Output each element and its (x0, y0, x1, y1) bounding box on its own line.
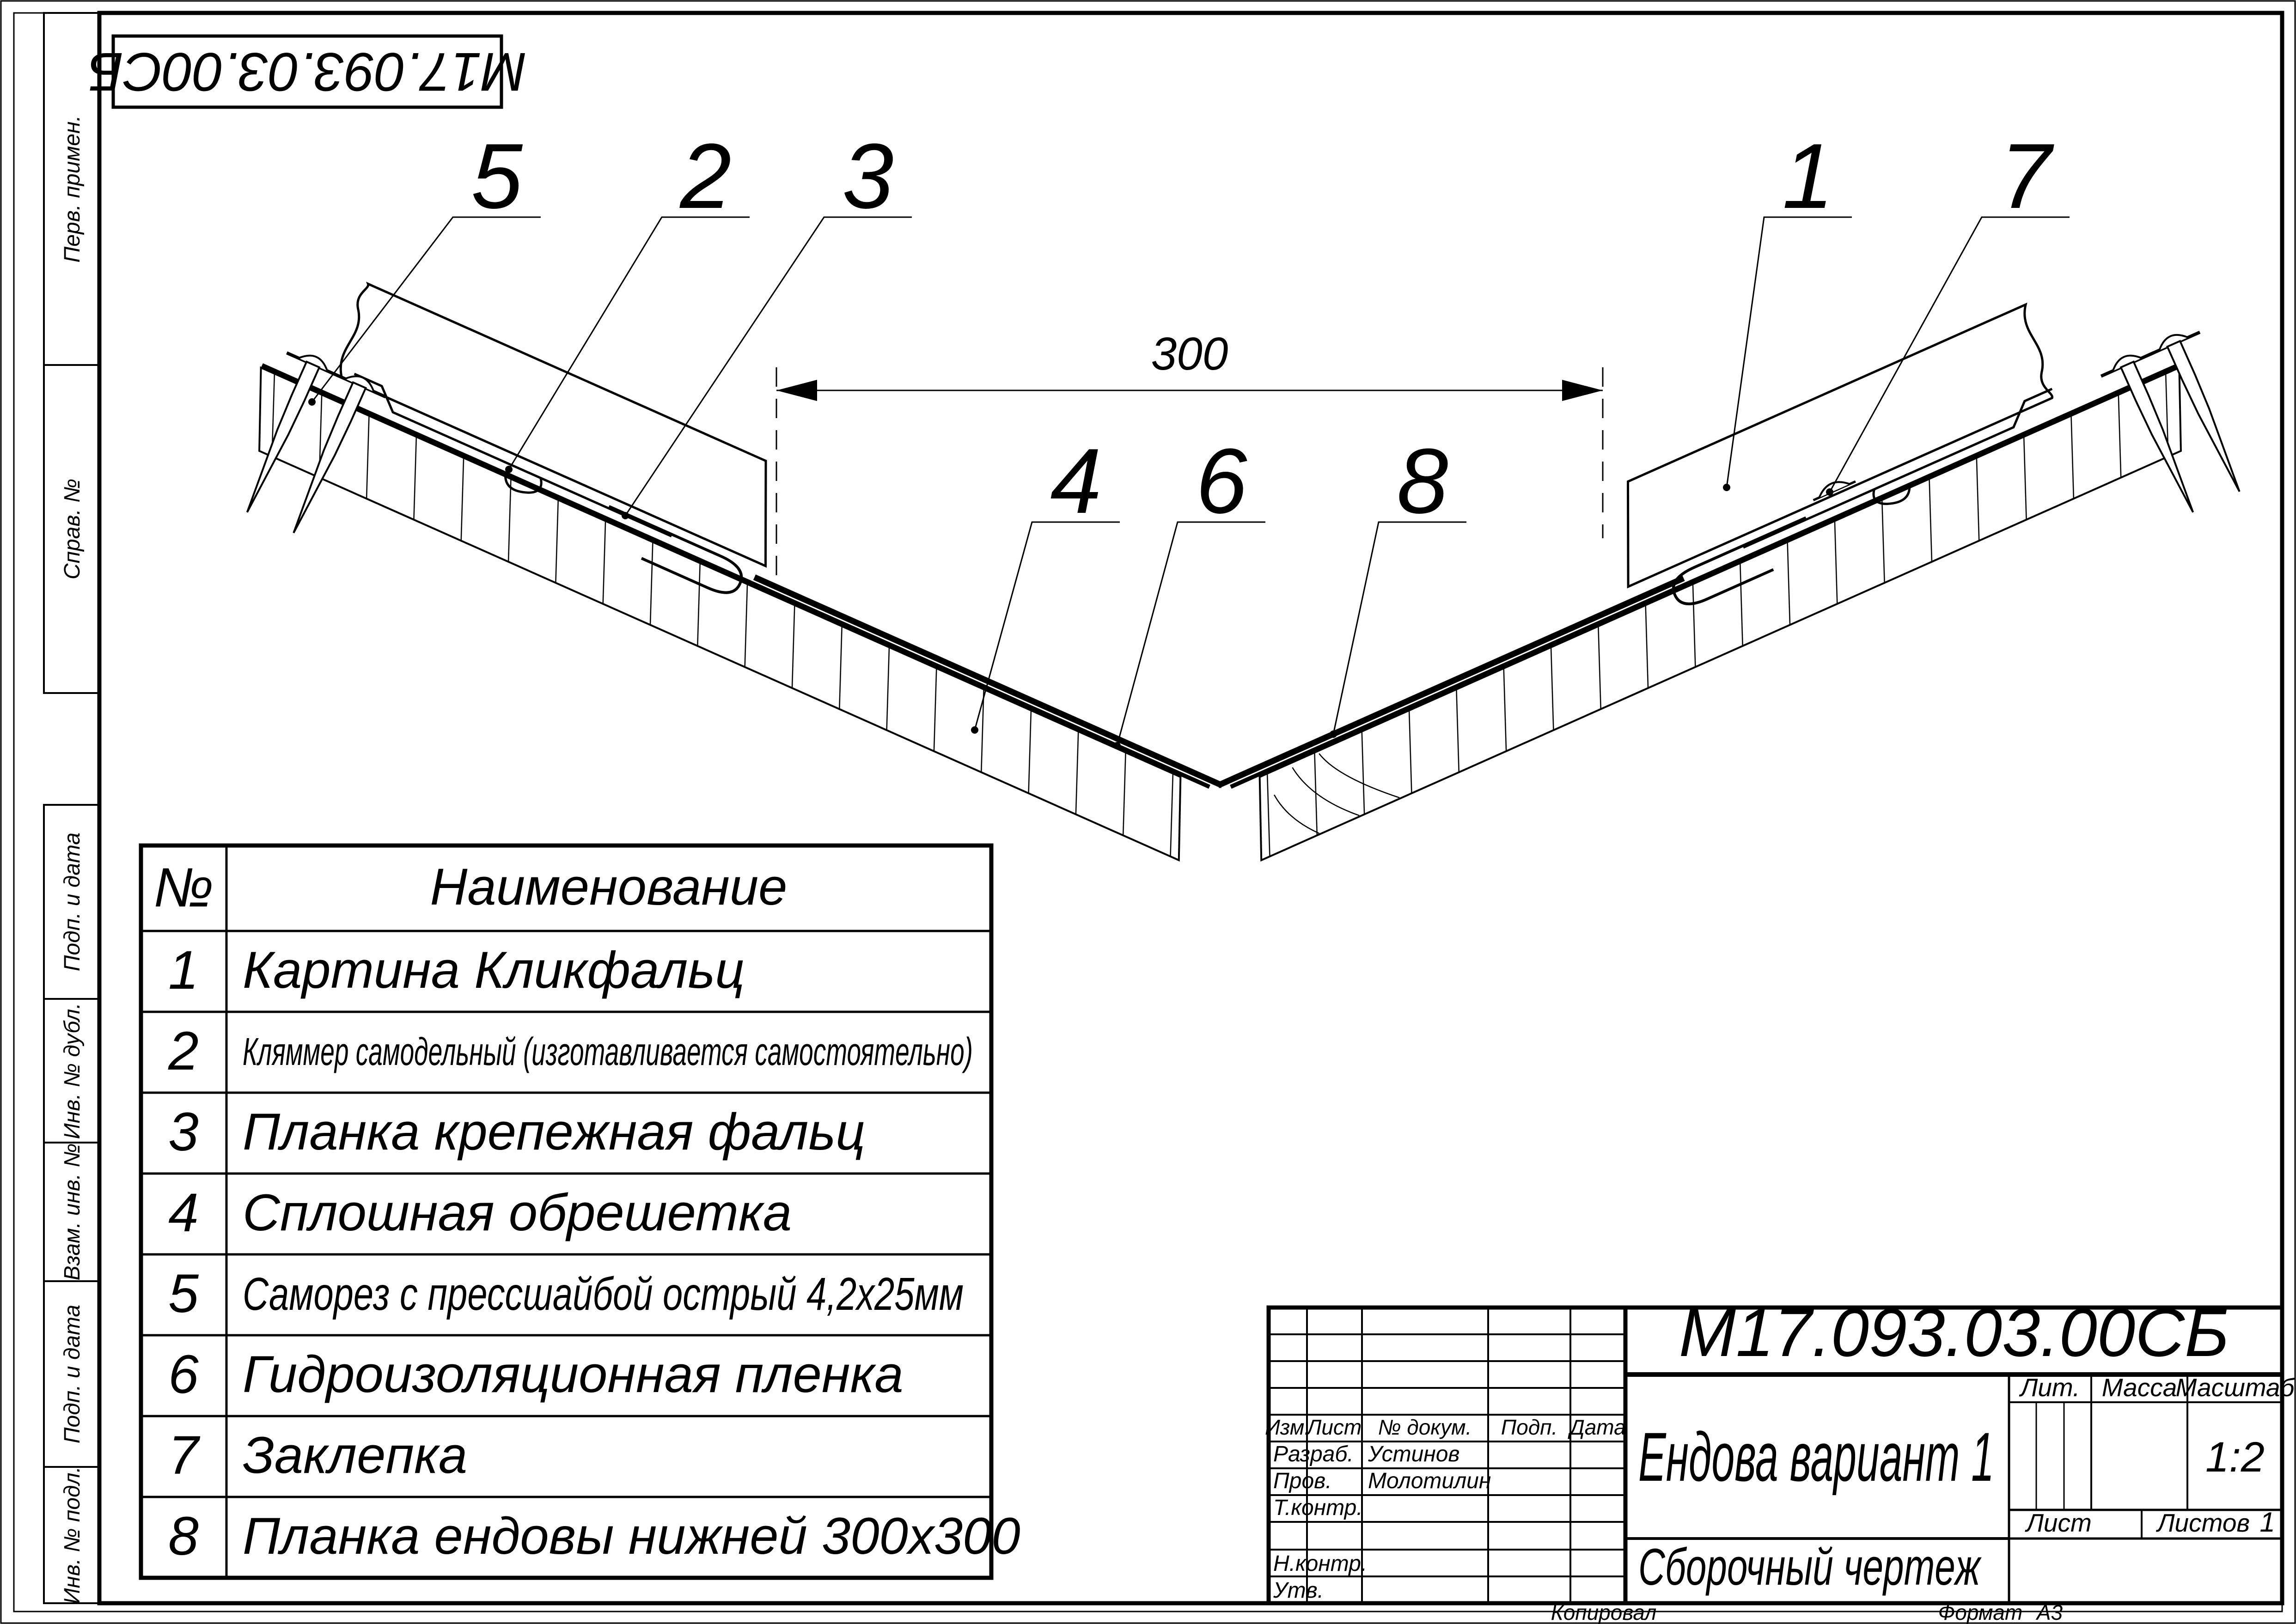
part-num: 8 (168, 1506, 199, 1567)
top-stamp: М17.093.03.00СБ (88, 36, 526, 107)
leader-4-dot (971, 726, 978, 734)
leader-1-dot (1723, 484, 1730, 491)
person-prov: Молотилин (1368, 1469, 1491, 1493)
footer-copied: Копировал (1551, 1600, 1657, 1624)
part-name: Гидроизоляционная пленка (243, 1345, 904, 1403)
title-doc-code: М17.093.03.00СБ (1679, 1295, 2229, 1371)
person-razrab: Устинов (1368, 1442, 1459, 1466)
parts-row-3: 3 Планка крепежная фальц (168, 1101, 865, 1162)
margin-label-perv-primen: Перв. примен. (60, 115, 85, 262)
callout-3: 3 (842, 125, 893, 228)
col-list: Лист (1306, 1415, 1362, 1439)
col-podp: Подп. (1501, 1415, 1557, 1439)
callout-5: 5 (471, 125, 523, 228)
leader-8-dot (1330, 730, 1337, 738)
title-name: Ендова вариант 1 (1638, 1418, 1994, 1496)
part-num: 7 (168, 1425, 201, 1486)
part-num: 6 (168, 1344, 199, 1405)
margin-label-sprav-no: Справ. № (60, 479, 85, 579)
role-tkontr: Т.контр. (1273, 1496, 1363, 1520)
part-name: Заклепка (243, 1426, 467, 1484)
top-stamp-code: М17.093.03.00СБ (88, 41, 526, 102)
listov-value: 1 (2259, 1507, 2275, 1538)
col-izm: Изм. (1265, 1415, 1310, 1439)
col-data: Дата (1567, 1415, 1625, 1439)
part-name: Планка ендовы нижней 300х300 (243, 1507, 1020, 1565)
footer-format-label: Формат (1938, 1600, 2023, 1624)
parts-row-5: 5 Саморез с прессшайбой острый 4,2х25мм (168, 1263, 964, 1324)
role-nkontr: Н.контр. (1273, 1551, 1367, 1576)
parts-row-4: 4 Сплошная обрешетка (168, 1182, 792, 1243)
callout-8: 8 (1397, 430, 1448, 533)
part-name: Сплошная обрешетка (243, 1184, 792, 1241)
parts-row-2: 2 Кляммер самодельный (изготавливается с… (168, 1021, 973, 1082)
part-name: Планка крепежная фальц (243, 1103, 865, 1161)
masshtab-label: Масштаб (2176, 1373, 2296, 1402)
list-label: Лист (2025, 1508, 2092, 1537)
callout-6: 6 (1196, 430, 1247, 533)
leader-2-dot (505, 466, 513, 473)
part-num: 4 (168, 1182, 199, 1243)
leader-6-dot (1113, 742, 1121, 749)
part-name: Картина Кликфальц (243, 941, 745, 999)
parts-row-6: 6 Гидроизоляционная пленка (168, 1344, 904, 1405)
parts-col-name-header: Наименование (430, 858, 788, 916)
margin-label-inv-dubl: Инв. № дубл. (60, 1003, 85, 1139)
parts-col-num-header: № (153, 857, 214, 918)
callout-2: 2 (679, 125, 731, 228)
callout-1: 1 (1782, 125, 1833, 228)
footer-format-value: А3 (2035, 1600, 2063, 1624)
parts-row-8: 8 Планка ендовы нижней 300х300 (168, 1506, 1020, 1567)
callout-4: 4 (1050, 430, 1101, 533)
drawing-sheet: Перв. примен. Справ. № Подп. и дата Инв.… (0, 0, 2296, 1624)
part-num: 3 (168, 1101, 199, 1162)
leader-3-dot (622, 512, 629, 519)
listov-label: Листов (2156, 1508, 2250, 1537)
margin-label-podp-data-2: Подп. и дата (60, 1305, 85, 1444)
role-razrab: Разраб. (1273, 1442, 1354, 1466)
scale-value: 1:2 (2205, 1434, 2265, 1481)
margin-label-vzam-inv: Взам. инв. № (60, 1143, 85, 1281)
part-num: 2 (168, 1021, 199, 1082)
leader-7-dot (1826, 488, 1833, 496)
part-name: Кляммер самодельный (изготавливается сам… (243, 1030, 973, 1073)
role-utv: Утв. (1273, 1578, 1324, 1603)
margin-label-podp-data-1: Подп. и дата (60, 833, 85, 972)
massa-label: Масса (2102, 1373, 2177, 1402)
part-num: 1 (168, 940, 199, 1001)
parts-row-1: 1 Картина Кликфальц (168, 940, 745, 1001)
title-doc-type: Сборочный чертеж (1638, 1538, 1982, 1596)
col-dokum: № докум. (1378, 1415, 1472, 1439)
lit-label: Лит. (2019, 1373, 2080, 1402)
callout-7: 7 (2000, 125, 2054, 228)
part-name: Саморез с прессшайбой острый 4,2х25мм (243, 1268, 964, 1320)
part-num: 5 (168, 1263, 199, 1324)
role-prov: Пров. (1273, 1469, 1332, 1493)
leader-5-dot (308, 398, 316, 406)
dimension-value: 300 (1151, 328, 1228, 380)
margin-label-inv-podl: Инв. № подл. (60, 1466, 85, 1604)
